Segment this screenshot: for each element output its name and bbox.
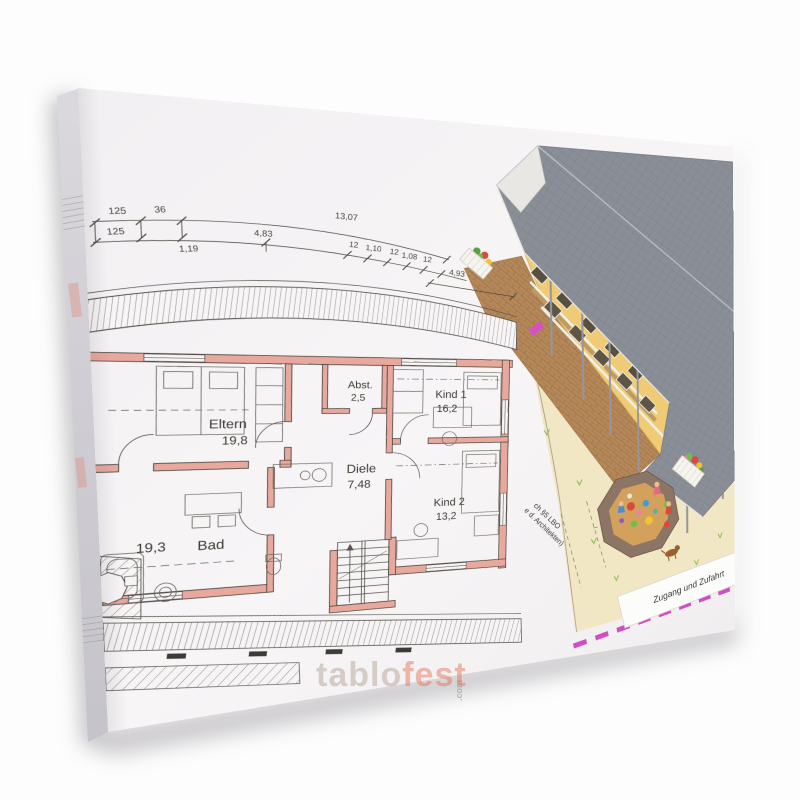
dim-36: 36 <box>154 205 167 215</box>
watermark-tld: .com <box>439 680 479 701</box>
room-label-bad: Bad <box>197 537 224 553</box>
dim-125-b: 125 <box>106 226 125 237</box>
room-label-eltern: Eltern <box>209 418 247 432</box>
dim-12-c: 12 <box>423 255 433 264</box>
wrapped-wall-mark <box>75 457 87 488</box>
watermark-part1: tablo <box>316 656 402 694</box>
room-area-diele: 7,48 <box>347 479 370 492</box>
room-label-abst: Abst. <box>348 379 373 391</box>
room-area-abst: 2,5 <box>351 392 366 403</box>
wrapped-wall-mark <box>68 283 82 318</box>
dim-12-b: 12 <box>389 248 399 258</box>
room-label-kind1: Kind 1 <box>435 389 466 401</box>
floor-plan-artwork: ch §5 LBO e d. Architekten) Zugang und Z… <box>78 88 735 732</box>
room-area-kind2: 13,2 <box>436 510 457 523</box>
watermark: tablofest .com <box>316 655 516 705</box>
room-label-kind2: Kind 2 <box>434 496 465 509</box>
canvas-print-front: ch §5 LBO e d. Architekten) Zugang und Z… <box>78 88 735 732</box>
room-area-eltern: 19,8 <box>222 435 248 448</box>
room-label-diele: Diele <box>346 462 376 476</box>
dim-110: 1,10 <box>365 244 382 254</box>
room-area-kind1: 16,2 <box>437 402 458 414</box>
dim-119: 1,19 <box>179 245 199 255</box>
dim-483: 4,83 <box>254 228 273 239</box>
dim-12-a: 12 <box>349 241 359 251</box>
product-photo-scene: ch §5 LBO e d. Architekten) Zugang und Z… <box>0 0 800 800</box>
dim-125-top: 125 <box>108 206 127 217</box>
room-area-bad: 19,3 <box>136 541 166 557</box>
